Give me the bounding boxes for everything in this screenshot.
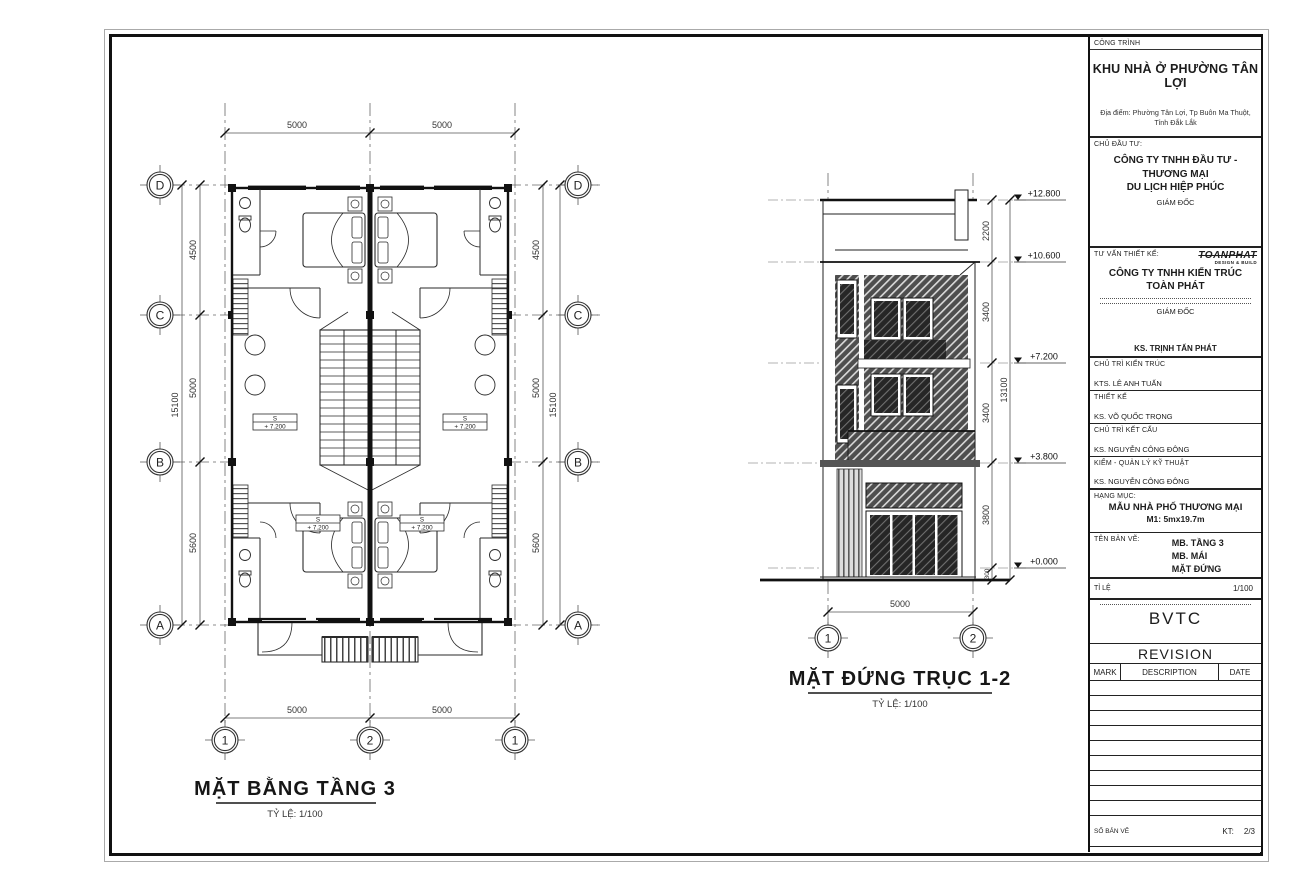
kt-label: KT: [1222,827,1234,836]
svg-text:+0.000: +0.000 [1030,557,1058,567]
toanphat-logo: TOANPHAT DESIGN & BUILD [1198,251,1257,266]
svg-text:+10.600: +10.600 [1028,251,1061,261]
giam-doc2-label: GIÁM ĐỐC [1090,307,1261,316]
svg-text:A: A [574,619,582,633]
svg-text:D: D [156,179,165,193]
bvtc-text: BVTC [1090,609,1261,629]
so-ban-ve-label: SỐ BẢN VẼ [1094,828,1129,835]
revision-columns: MARK DESCRIPTION DATE [1090,664,1261,681]
svg-text:15100: 15100 [170,392,180,417]
svg-text:A: A [156,619,164,633]
svg-text:3800: 3800 [981,505,991,525]
svg-text:2200: 2200 [981,221,991,241]
giam-doc-label: GIÁM ĐỐC [1090,198,1261,207]
elevation-title: MẶT ĐỨNG TRỤC 1-2 [789,666,1011,690]
revision-header: REVISION [1090,644,1261,664]
project-section: CÔNG TRÌNH KHU NHÀ Ở PHƯỜNG TÂN LỢI Địa … [1090,37,1261,138]
investor-section: CHỦ ĐẦU TƯ: CÔNG TY TNHH ĐẦU TƯ - THƯƠNG… [1090,138,1261,248]
cong-trinh-label: CÔNG TRÌNH [1090,37,1261,50]
scale-value: 1/100 [1233,584,1253,593]
bvtc-section: BVTC [1090,600,1261,644]
revision-empty-row [1090,771,1261,786]
consultant-name: CÔNG TY TNHH KIẾN TRÚC TOÀN PHÁT [1090,267,1261,294]
title-block: CÔNG TRÌNH KHU NHÀ Ở PHƯỜNG TÂN LỢI Địa … [1088,37,1261,852]
svg-text:+ 7.200: + 7.200 [264,424,286,431]
chu-dau-tu-label: CHỦ ĐẦU TƯ: [1090,138,1261,150]
sheet-number-row: SỐ BẢN VẼ KT: 2/3 [1090,816,1261,847]
svg-text:B: B [574,456,582,470]
role-row: CHỦ TRÌ KIẾN TRÚC KTS. LÊ ANH TUẤN [1090,358,1261,391]
ten-ban-ve-section: TÊN BẢN VẼ: MB. TẦNG 3 MB. MÁI MẶT ĐỨNG [1090,533,1261,579]
project-name: KHU NHÀ Ở PHƯỜNG TÂN LỢI [1090,62,1261,90]
svg-text:5600: 5600 [531,533,541,553]
svg-text:+3.800: +3.800 [1030,452,1058,462]
svg-text:C: C [574,309,583,323]
signature-dotline [1100,303,1251,304]
scale-row: TỈ LỆ 1/100 [1090,579,1261,600]
svg-text:+ 7.200: + 7.200 [454,424,476,431]
svg-text:+ 7.200: + 7.200 [411,525,433,532]
svg-text:4500: 4500 [188,240,198,260]
svg-text:5000: 5000 [287,705,307,715]
category-name: MẪU NHÀ PHỐ THƯƠNG MẠI [1090,502,1261,513]
svg-text:S: S [420,517,424,524]
revision-empty-row [1090,786,1261,801]
consultant-section: TƯ VẤN THIẾT KẾ: TOANPHAT DESIGN & BUILD… [1090,248,1261,358]
revision-empty-row [1090,711,1261,726]
svg-text:1: 1 [825,632,832,646]
svg-text:300: 300 [984,568,991,579]
svg-text:2: 2 [970,632,977,646]
svg-text:5000: 5000 [531,378,541,398]
svg-text:2: 2 [367,734,374,748]
svg-text:5000: 5000 [432,705,452,715]
tu-van-label: TƯ VẤN THIẾT KẾ: [1094,251,1159,258]
role-row: THIẾT KẾ KS. VÕ QUỐC TRỌNG [1090,391,1261,424]
grid-bubbles-cols: 1 2 1 [205,720,535,760]
hang-muc-section: HẠNG MỤC: MẪU NHÀ PHỐ THƯƠNG MẠI M1: 5mx… [1090,490,1261,533]
svg-text:+12.800: +12.800 [1028,189,1061,199]
svg-text:S: S [463,416,467,423]
floor-plan: 5000 5000 4500 5000 5600 15100 4500 5000… [140,103,600,820]
svg-text:5600: 5600 [188,533,198,553]
svg-text:3400: 3400 [981,302,991,322]
drawing-area: 5000 5000 4500 5000 5600 15100 4500 5000… [108,33,1090,862]
revision-empty-row [1090,801,1261,816]
svg-text:B: B [156,456,164,470]
revision-empty-row [1090,696,1261,711]
bottom-empty-row [1090,847,1261,852]
elevation-scale: TỶ LỆ: 1/100 [872,698,927,710]
signature-dotline [1100,298,1251,299]
svg-text:S: S [273,416,277,423]
elevation: 2200 3400 3400 3800 300 13100 +12.800 +1… [748,173,1066,710]
plan-dim-top-2: 5000 [432,120,452,130]
floor-plan-scale: TỶ LỆ: 1/100 [267,808,322,820]
svg-text:4500: 4500 [531,240,541,260]
revision-empty-row [1090,741,1261,756]
svg-text:S: S [316,517,320,524]
svg-text:1: 1 [512,734,519,748]
ti-le-label: TỈ LỆ [1094,585,1111,592]
svg-text:5000: 5000 [890,599,910,609]
ten-ban-ve-label: TÊN BẢN VẼ: [1090,533,1144,577]
role-row: KIỂM - QUẢN LÝ KỸ THUẬT KS. NGUYỄN CÔNG … [1090,457,1261,490]
floor-plan-title: MẶT BẰNG TẦNG 3 [194,776,396,800]
svg-text:D: D [574,179,583,193]
svg-text:5000: 5000 [188,378,198,398]
bvtc-dotline [1100,604,1251,605]
revision-empty-row [1090,726,1261,741]
sheet-number: 2/3 [1244,827,1255,836]
category-size: M1: 5mx19.7m [1090,514,1261,524]
svg-text:15100: 15100 [548,392,558,417]
project-address: Địa điểm: Phường Tân Lợi, Tp Buôn Ma Thu… [1090,108,1261,128]
sheet-name-list: MB. TẦNG 3 MB. MÁI MẶT ĐỨNG [1144,533,1261,577]
svg-text:3400: 3400 [981,403,991,423]
hang-muc-label: HẠNG MỤC: [1090,490,1261,502]
svg-text:C: C [156,309,165,323]
role-row: CHỦ TRÌ KẾT CẤU KS. NGUYỄN CÔNG ĐÔNG [1090,424,1261,457]
revision-empty-row [1090,756,1261,771]
svg-text:13100: 13100 [999,377,1009,402]
plan-dim-top-1: 5000 [287,120,307,130]
svg-text:+ 7.200: + 7.200 [307,525,329,532]
drawing-sheet: 5000 5000 4500 5000 5600 15100 4500 5000… [0,0,1290,886]
svg-text:1: 1 [222,734,229,748]
investor-name: CÔNG TY TNHH ĐẦU TƯ - THƯƠNG MẠI DU LỊCH… [1090,154,1261,195]
director-name: KS. TRỊNH TẤN PHÁT [1090,344,1261,353]
revision-empty-row [1090,681,1261,696]
svg-text:+7.200: +7.200 [1030,352,1058,362]
